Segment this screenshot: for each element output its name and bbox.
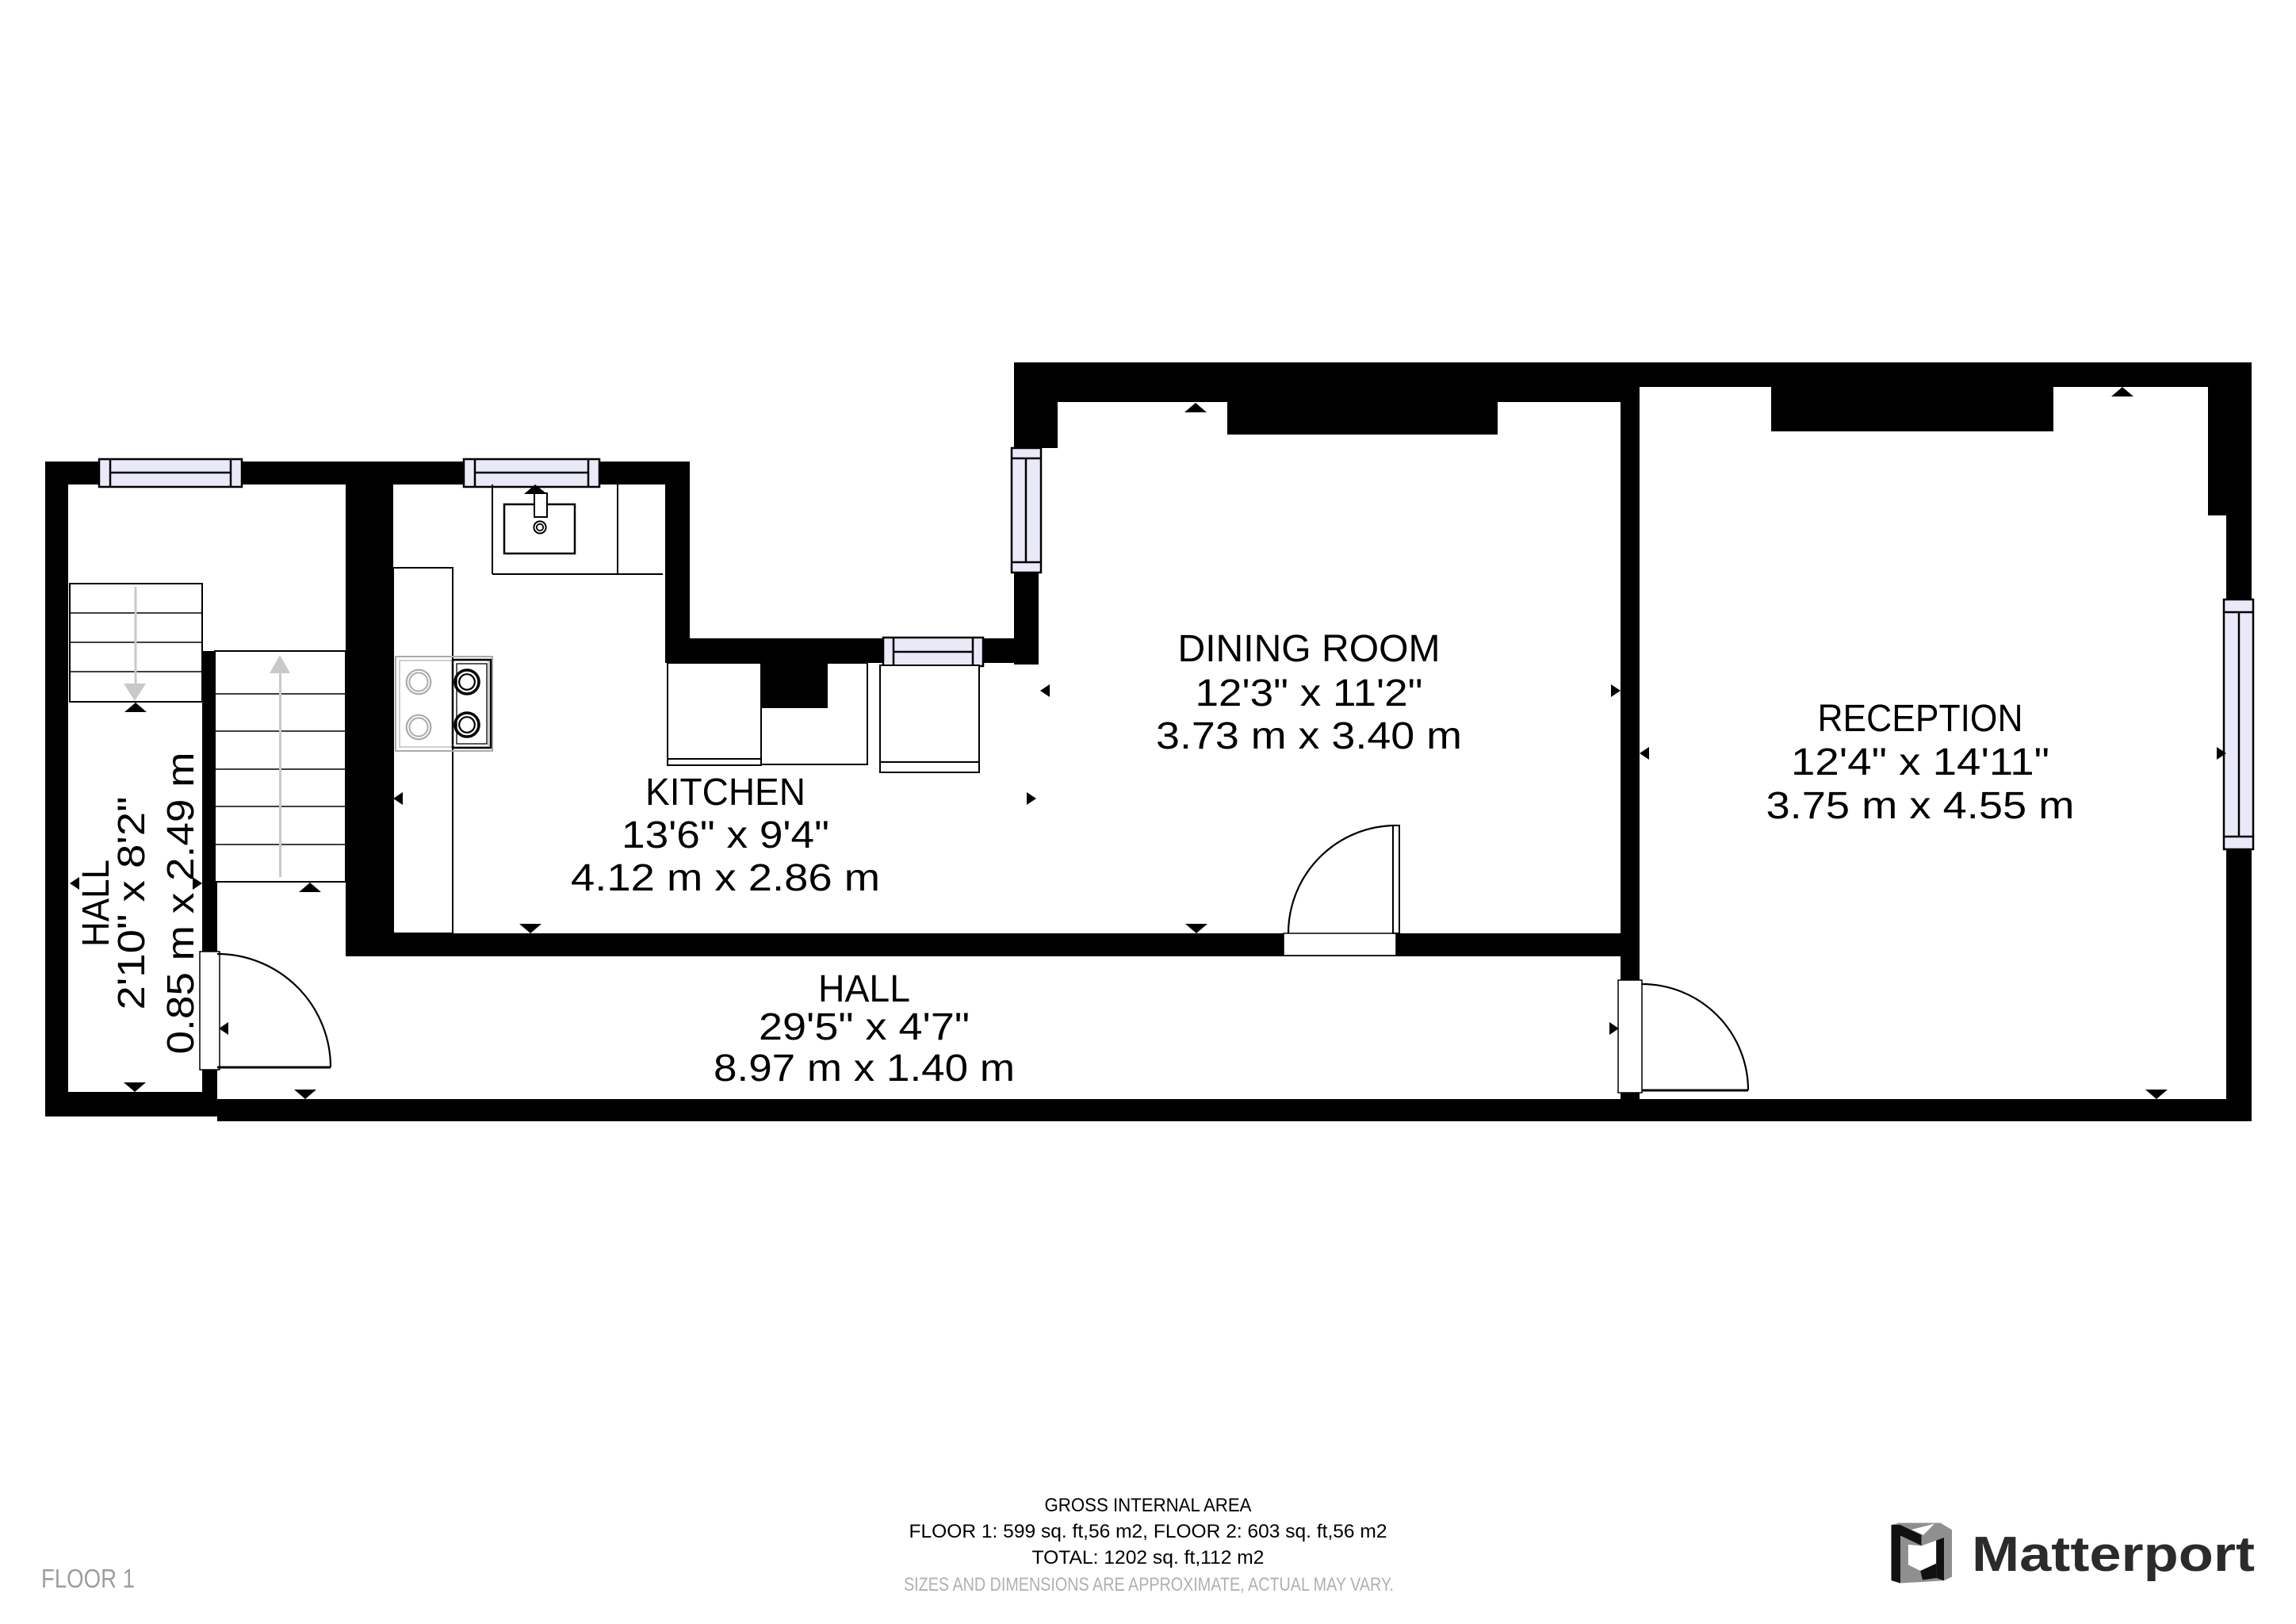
svg-text:3.75 m x 4.55 m: 3.75 m x 4.55 m [1766, 785, 2075, 827]
svg-text:8.97 m x 1.40 m: 8.97 m x 1.40 m [714, 1048, 1015, 1090]
svg-text:FLOOR 1: FLOOR 1 [41, 1564, 135, 1593]
svg-text:4.12 m x 2.86 m: 4.12 m x 2.86 m [571, 857, 880, 899]
svg-text:FLOOR 1: 599 sq. ft,56 m2, FLO: FLOOR 1: 599 sq. ft,56 m2, FLOOR 2: 603 … [909, 1521, 1387, 1542]
svg-text:TOTAL: 1202 sq. ft,112 m2: TOTAL: 1202 sq. ft,112 m2 [1032, 1547, 1265, 1568]
svg-text:13'6" x 9'4": 13'6" x 9'4" [622, 814, 829, 856]
svg-text:29'5" x 4'7": 29'5" x 4'7" [759, 1006, 970, 1048]
svg-text:3.73 m x 3.40 m: 3.73 m x 3.40 m [1156, 715, 1462, 757]
svg-text:KITCHEN: KITCHEN [645, 772, 806, 814]
svg-text:GROSS INTERNAL AREA: GROSS INTERNAL AREA [1045, 1495, 1252, 1516]
svg-text:12'4" x 14'11": 12'4" x 14'11" [1791, 741, 2049, 783]
svg-text:0.85 m x 2.49 m: 0.85 m x 2.49 m [160, 753, 202, 1055]
svg-text:DINING ROOM: DINING ROOM [1178, 628, 1441, 670]
svg-text:HALL: HALL [818, 968, 910, 1010]
svg-text:2'10" x 8'2": 2'10" x 8'2" [111, 797, 153, 1010]
svg-text:12'3" x 11'2": 12'3" x 11'2" [1196, 672, 1423, 714]
svg-text:RECEPTION: RECEPTION [1818, 698, 2023, 740]
svg-text:SIZES AND DIMENSIONS ARE APPRO: SIZES AND DIMENSIONS ARE APPROXIMATE, AC… [904, 1574, 1394, 1595]
svg-text:Matterport: Matterport [1972, 1527, 2255, 1582]
